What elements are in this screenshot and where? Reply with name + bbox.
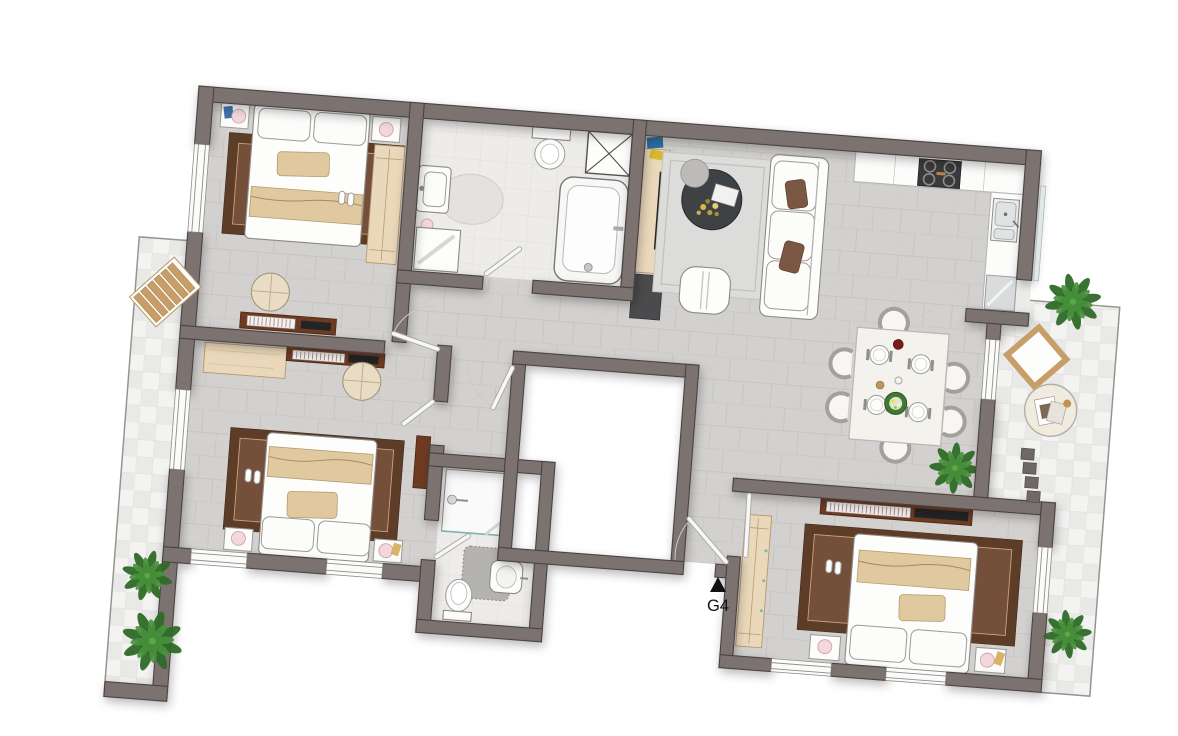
pillow	[849, 625, 907, 663]
dining-chair	[879, 308, 909, 331]
armchair-pouf	[678, 266, 731, 316]
kitchen-sink	[991, 198, 1021, 242]
bread-bowl	[876, 381, 885, 390]
unit-label: G4	[707, 597, 729, 615]
faucet	[613, 226, 623, 231]
washing-machine	[414, 227, 461, 272]
pillow	[317, 520, 371, 556]
stove	[917, 158, 961, 188]
pillow	[313, 112, 367, 146]
drain	[584, 263, 593, 272]
dining-chair	[826, 392, 849, 422]
faucet	[520, 578, 528, 579]
bathtub	[553, 176, 629, 285]
accent-pillow	[899, 594, 946, 621]
nightstand	[809, 635, 841, 661]
nightstand	[220, 103, 250, 129]
entrance-marker-icon	[710, 577, 726, 592]
floor-plan-image: G4	[0, 0, 1178, 736]
fridge	[984, 275, 1017, 311]
double-bed	[845, 534, 979, 674]
nightstand	[224, 527, 254, 551]
pillow	[909, 629, 967, 667]
accent-pillow	[287, 491, 338, 518]
ventilation-shaft	[585, 131, 632, 176]
floor-plan-page: G4	[0, 0, 1178, 736]
nightstand	[371, 116, 401, 142]
double-bed	[244, 103, 370, 247]
sofa-pillow	[785, 179, 809, 209]
accent-pillow	[277, 152, 330, 177]
desk	[203, 342, 287, 378]
book	[647, 137, 664, 149]
apartment-plan	[99, 82, 1133, 736]
sofa	[759, 154, 829, 320]
double-bed	[258, 432, 377, 562]
washbasin	[416, 165, 451, 213]
nightstand	[974, 647, 1006, 673]
nightstand	[373, 539, 403, 563]
dining-chair	[829, 348, 852, 378]
pillow	[257, 108, 311, 142]
pillow	[261, 516, 315, 552]
dining-chair	[946, 363, 969, 393]
dining-chair	[942, 407, 965, 437]
shower-head	[447, 495, 457, 505]
